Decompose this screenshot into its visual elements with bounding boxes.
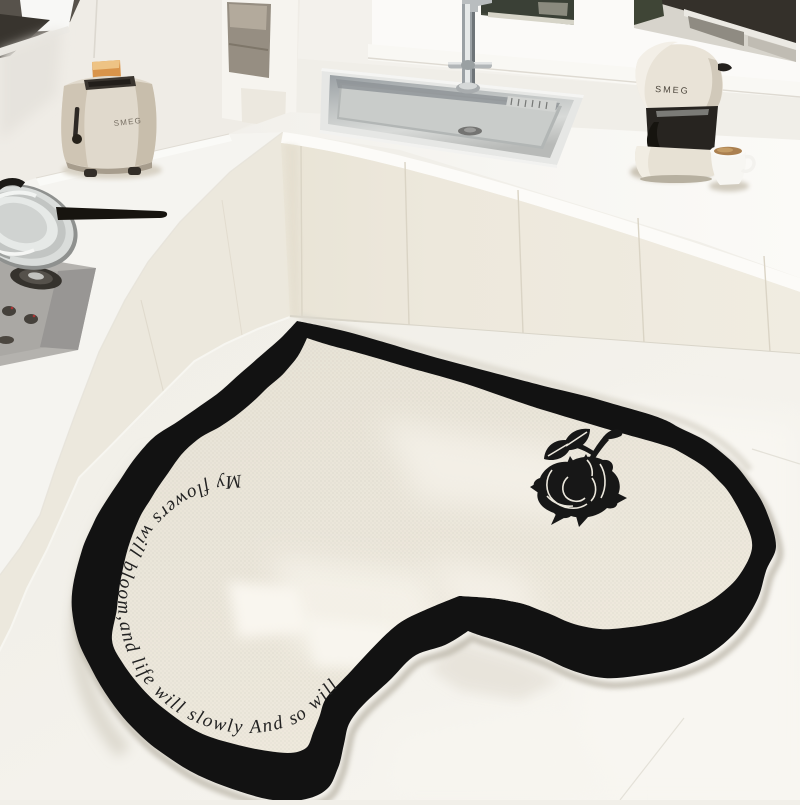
svg-text:SMEG: SMEG <box>655 84 690 96</box>
